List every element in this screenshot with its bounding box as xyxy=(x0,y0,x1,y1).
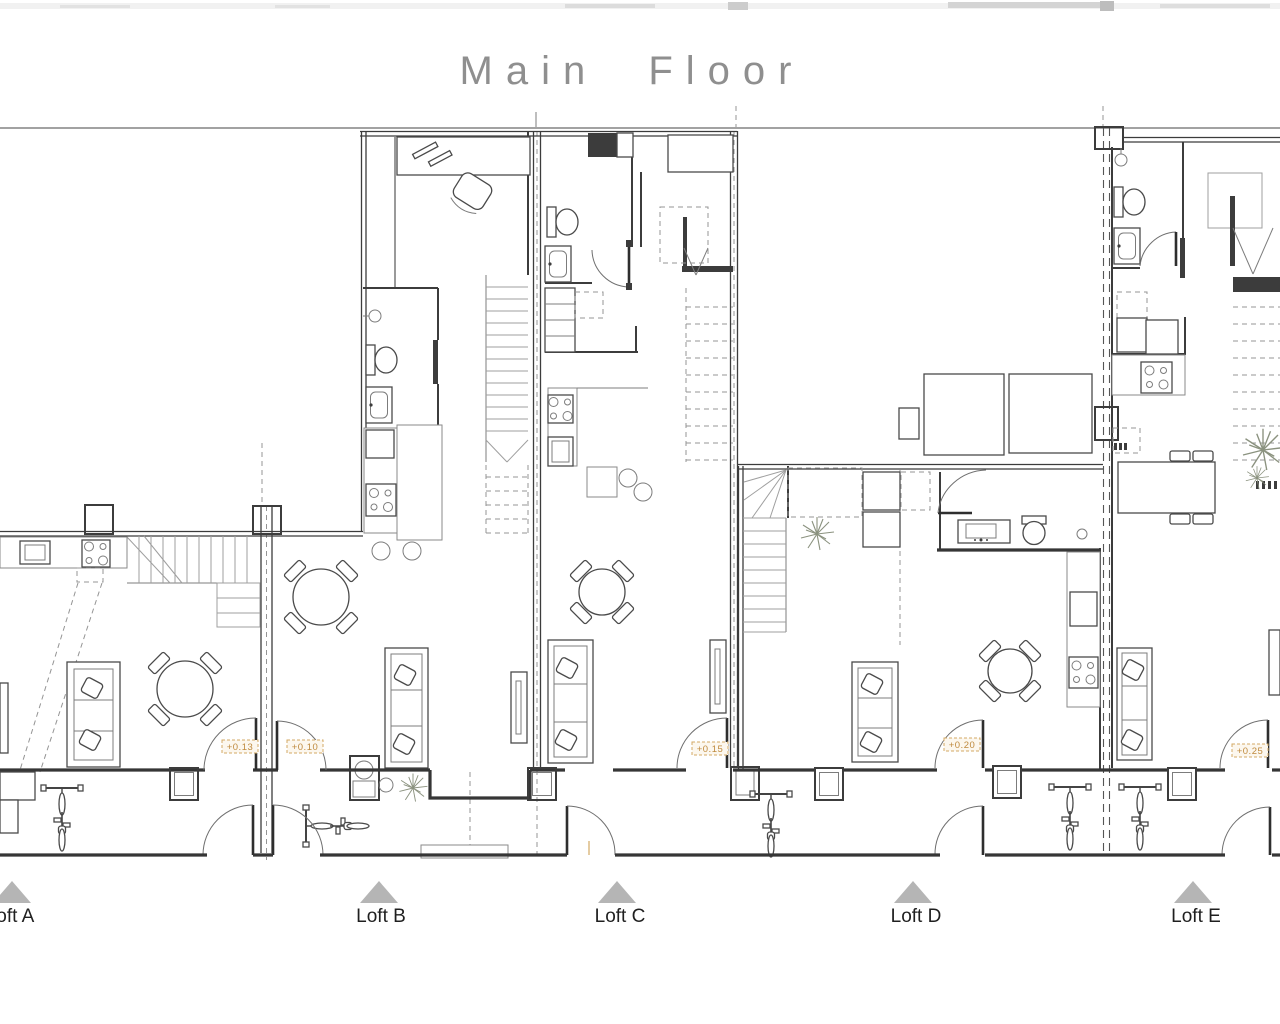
bath-door xyxy=(1140,232,1176,266)
toilet-icon xyxy=(547,207,578,237)
dining-table-loft-d xyxy=(979,640,1042,703)
kitchen-loft-d xyxy=(1067,552,1100,707)
dining-table-loft-b xyxy=(284,560,359,635)
entry-arrow-loft-b xyxy=(360,881,398,903)
loft-label-c: Loft C xyxy=(595,906,646,927)
vanity-sink-icon xyxy=(366,387,392,423)
stove-icon xyxy=(1141,362,1172,393)
entry-markers: Loft A Loft B Loft C Loft D Loft E xyxy=(0,881,1221,927)
bedroom-door xyxy=(938,470,986,513)
window-icon xyxy=(528,768,556,800)
street-door-loft-d xyxy=(935,806,983,855)
elevation-value: +0.25 xyxy=(1237,746,1264,757)
kitchen-loft-c xyxy=(545,288,652,501)
elevation-value: +0.10 xyxy=(292,742,319,753)
floor-plan-drawing: Main Floor xyxy=(0,0,1280,1024)
stairs-loft-e xyxy=(1208,173,1280,489)
plant-icon xyxy=(801,517,834,550)
sofa-loft-d xyxy=(852,662,898,762)
elevation-label-loft-b: +0.10 xyxy=(287,740,323,753)
desk-loft-b xyxy=(397,137,530,218)
elevation-label-loft-d: +0.20 xyxy=(944,738,980,751)
street-door-loft-b xyxy=(273,805,323,855)
sofa-loft-a xyxy=(67,662,120,767)
entry-arrow-loft-e xyxy=(1174,881,1212,903)
kitchen-loft-b xyxy=(364,425,442,560)
window-icon xyxy=(1168,768,1196,800)
street-door-loft-c xyxy=(567,806,615,855)
street-door-loft-a xyxy=(203,805,253,855)
page-title: Main Floor xyxy=(460,49,805,93)
plant-icon xyxy=(1243,429,1280,470)
elevation-label-loft-e: +0.25 xyxy=(1232,744,1268,757)
sofa-loft-b xyxy=(385,648,428,768)
bathroom-loft-b xyxy=(363,310,397,423)
toilet-icon xyxy=(1022,516,1046,545)
street-door-loft-e xyxy=(1222,807,1270,855)
entry-arrow-loft-a xyxy=(0,881,31,903)
bicycle-icon xyxy=(1119,784,1161,850)
plant-icon xyxy=(399,774,427,802)
vanity-sink-icon xyxy=(545,246,571,282)
top-trim-marks xyxy=(0,1,1280,11)
loft-label-d: Loft D xyxy=(891,906,942,927)
bicycle-icon xyxy=(41,785,83,851)
kitchen-loft-a xyxy=(0,537,127,582)
party-wall-b-c xyxy=(534,131,541,860)
stove-icon xyxy=(1069,657,1098,688)
elevation-value: +0.13 xyxy=(227,742,254,753)
tv-loft-e xyxy=(1269,630,1280,695)
sofa-loft-e xyxy=(1117,648,1152,760)
dining-table-loft-e xyxy=(1118,451,1215,524)
toilet-icon xyxy=(1114,187,1145,217)
bathroom-loft-d xyxy=(938,470,1087,545)
floor-plan-page: Main Floor xyxy=(0,0,1280,1024)
bathroom-loft-e xyxy=(1114,148,1176,266)
stairs-loft-a xyxy=(20,536,260,772)
elevation-label-loft-c: +0.15 xyxy=(692,742,728,755)
tv-loft-b xyxy=(511,672,527,743)
yard-loungers-loft-d xyxy=(899,374,1092,455)
office-chair-icon xyxy=(447,170,494,218)
elevation-value: +0.15 xyxy=(697,744,724,755)
sofa-loft-c xyxy=(548,640,593,763)
bicycle-icon xyxy=(1049,784,1091,850)
stairs-loft-c xyxy=(660,207,733,462)
loft-label-e: Loft E xyxy=(1171,906,1221,927)
tv-loft-a xyxy=(0,683,8,753)
party-wall-c-d xyxy=(731,131,760,800)
loft-label-a: Loft A xyxy=(0,906,35,927)
stairs-loft-b xyxy=(486,275,528,537)
bath-door xyxy=(592,240,632,290)
closets-loft-d xyxy=(863,472,930,547)
vanity-sink-icon xyxy=(1114,228,1140,264)
elevation-label-loft-a: +0.13 xyxy=(222,740,258,753)
bicycle-icon xyxy=(303,805,369,847)
entry-arrow-loft-c xyxy=(598,881,636,903)
stove-icon xyxy=(366,484,396,516)
window-icon xyxy=(170,768,198,800)
sink-icon xyxy=(1115,148,1127,166)
loft-label-b: Loft B xyxy=(356,906,406,927)
stairs-loft-d xyxy=(743,468,862,632)
entry-arrow-loft-d xyxy=(894,881,932,903)
elevation-value: +0.20 xyxy=(949,740,976,751)
party-wall-a-b xyxy=(253,506,281,860)
toilet-icon xyxy=(366,345,397,375)
dining-table-loft-c xyxy=(570,560,635,625)
window-icon xyxy=(993,766,1021,798)
window-icon xyxy=(815,768,843,800)
stove-icon xyxy=(82,540,110,567)
stove-icon xyxy=(548,395,573,423)
vanity-sink-icon xyxy=(958,520,1010,543)
kitchen-loft-e xyxy=(1112,292,1185,453)
tv-loft-c xyxy=(710,640,726,713)
dining-table-loft-a xyxy=(148,652,223,727)
